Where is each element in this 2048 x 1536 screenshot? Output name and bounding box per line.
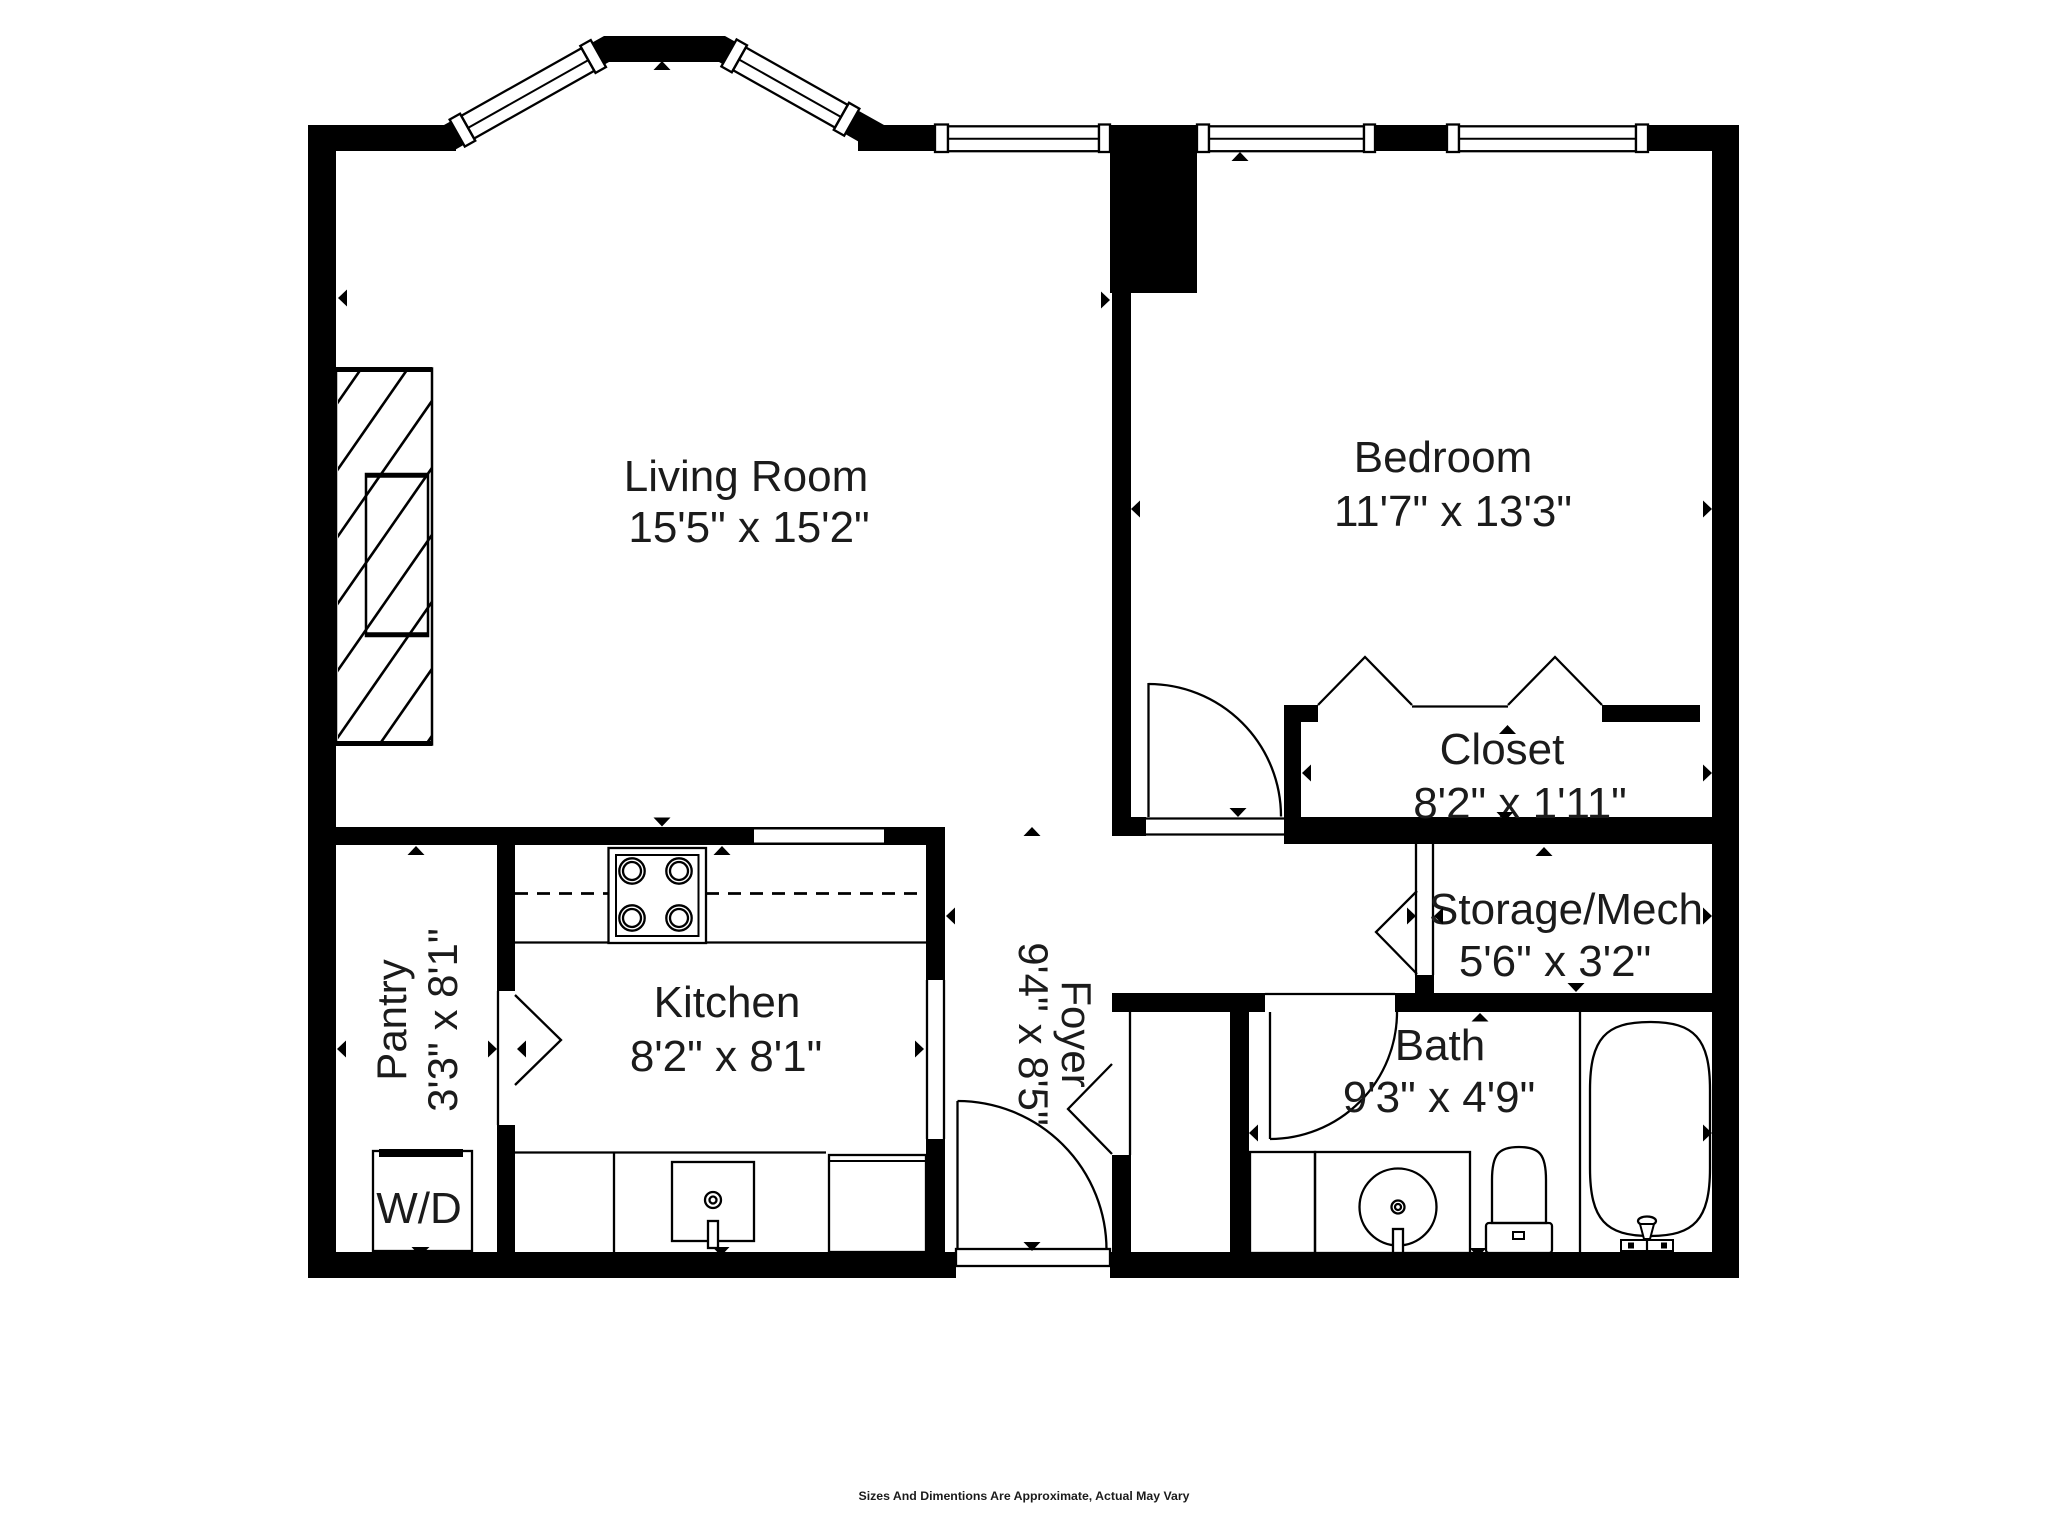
svg-text:Kitchen: Kitchen (654, 978, 801, 1027)
svg-text:Sizes And Dimentions Are Appro: Sizes And Dimentions Are Approximate, Ac… (859, 1489, 1190, 1503)
svg-text:W/D: W/D (376, 1184, 462, 1233)
svg-text:9'3" x 4'9": 9'3" x 4'9" (1343, 1073, 1535, 1122)
svg-text:Living Room: Living Room (624, 452, 869, 501)
svg-text:8'2" x 1'11": 8'2" x 1'11" (1413, 779, 1627, 828)
svg-text:5'6" x 3'2": 5'6" x 3'2" (1459, 937, 1651, 986)
svg-text:11'7" x 13'3": 11'7" x 13'3" (1334, 487, 1572, 536)
svg-text:8'2" x 8'1": 8'2" x 8'1" (630, 1032, 822, 1081)
svg-text:3'3" x 8'1": 3'3" x 8'1" (419, 928, 466, 1112)
svg-text:Pantry: Pantry (368, 959, 415, 1080)
svg-text:Storage/Mech: Storage/Mech (1429, 885, 1703, 934)
svg-text:9'4" x 8'5": 9'4" x 8'5" (1010, 942, 1057, 1126)
svg-text:Foyer: Foyer (1053, 980, 1100, 1087)
svg-text:Bedroom: Bedroom (1354, 433, 1533, 482)
svg-text:15'5" x 15'2": 15'5" x 15'2" (628, 503, 869, 552)
svg-text:Bath: Bath (1395, 1021, 1486, 1070)
